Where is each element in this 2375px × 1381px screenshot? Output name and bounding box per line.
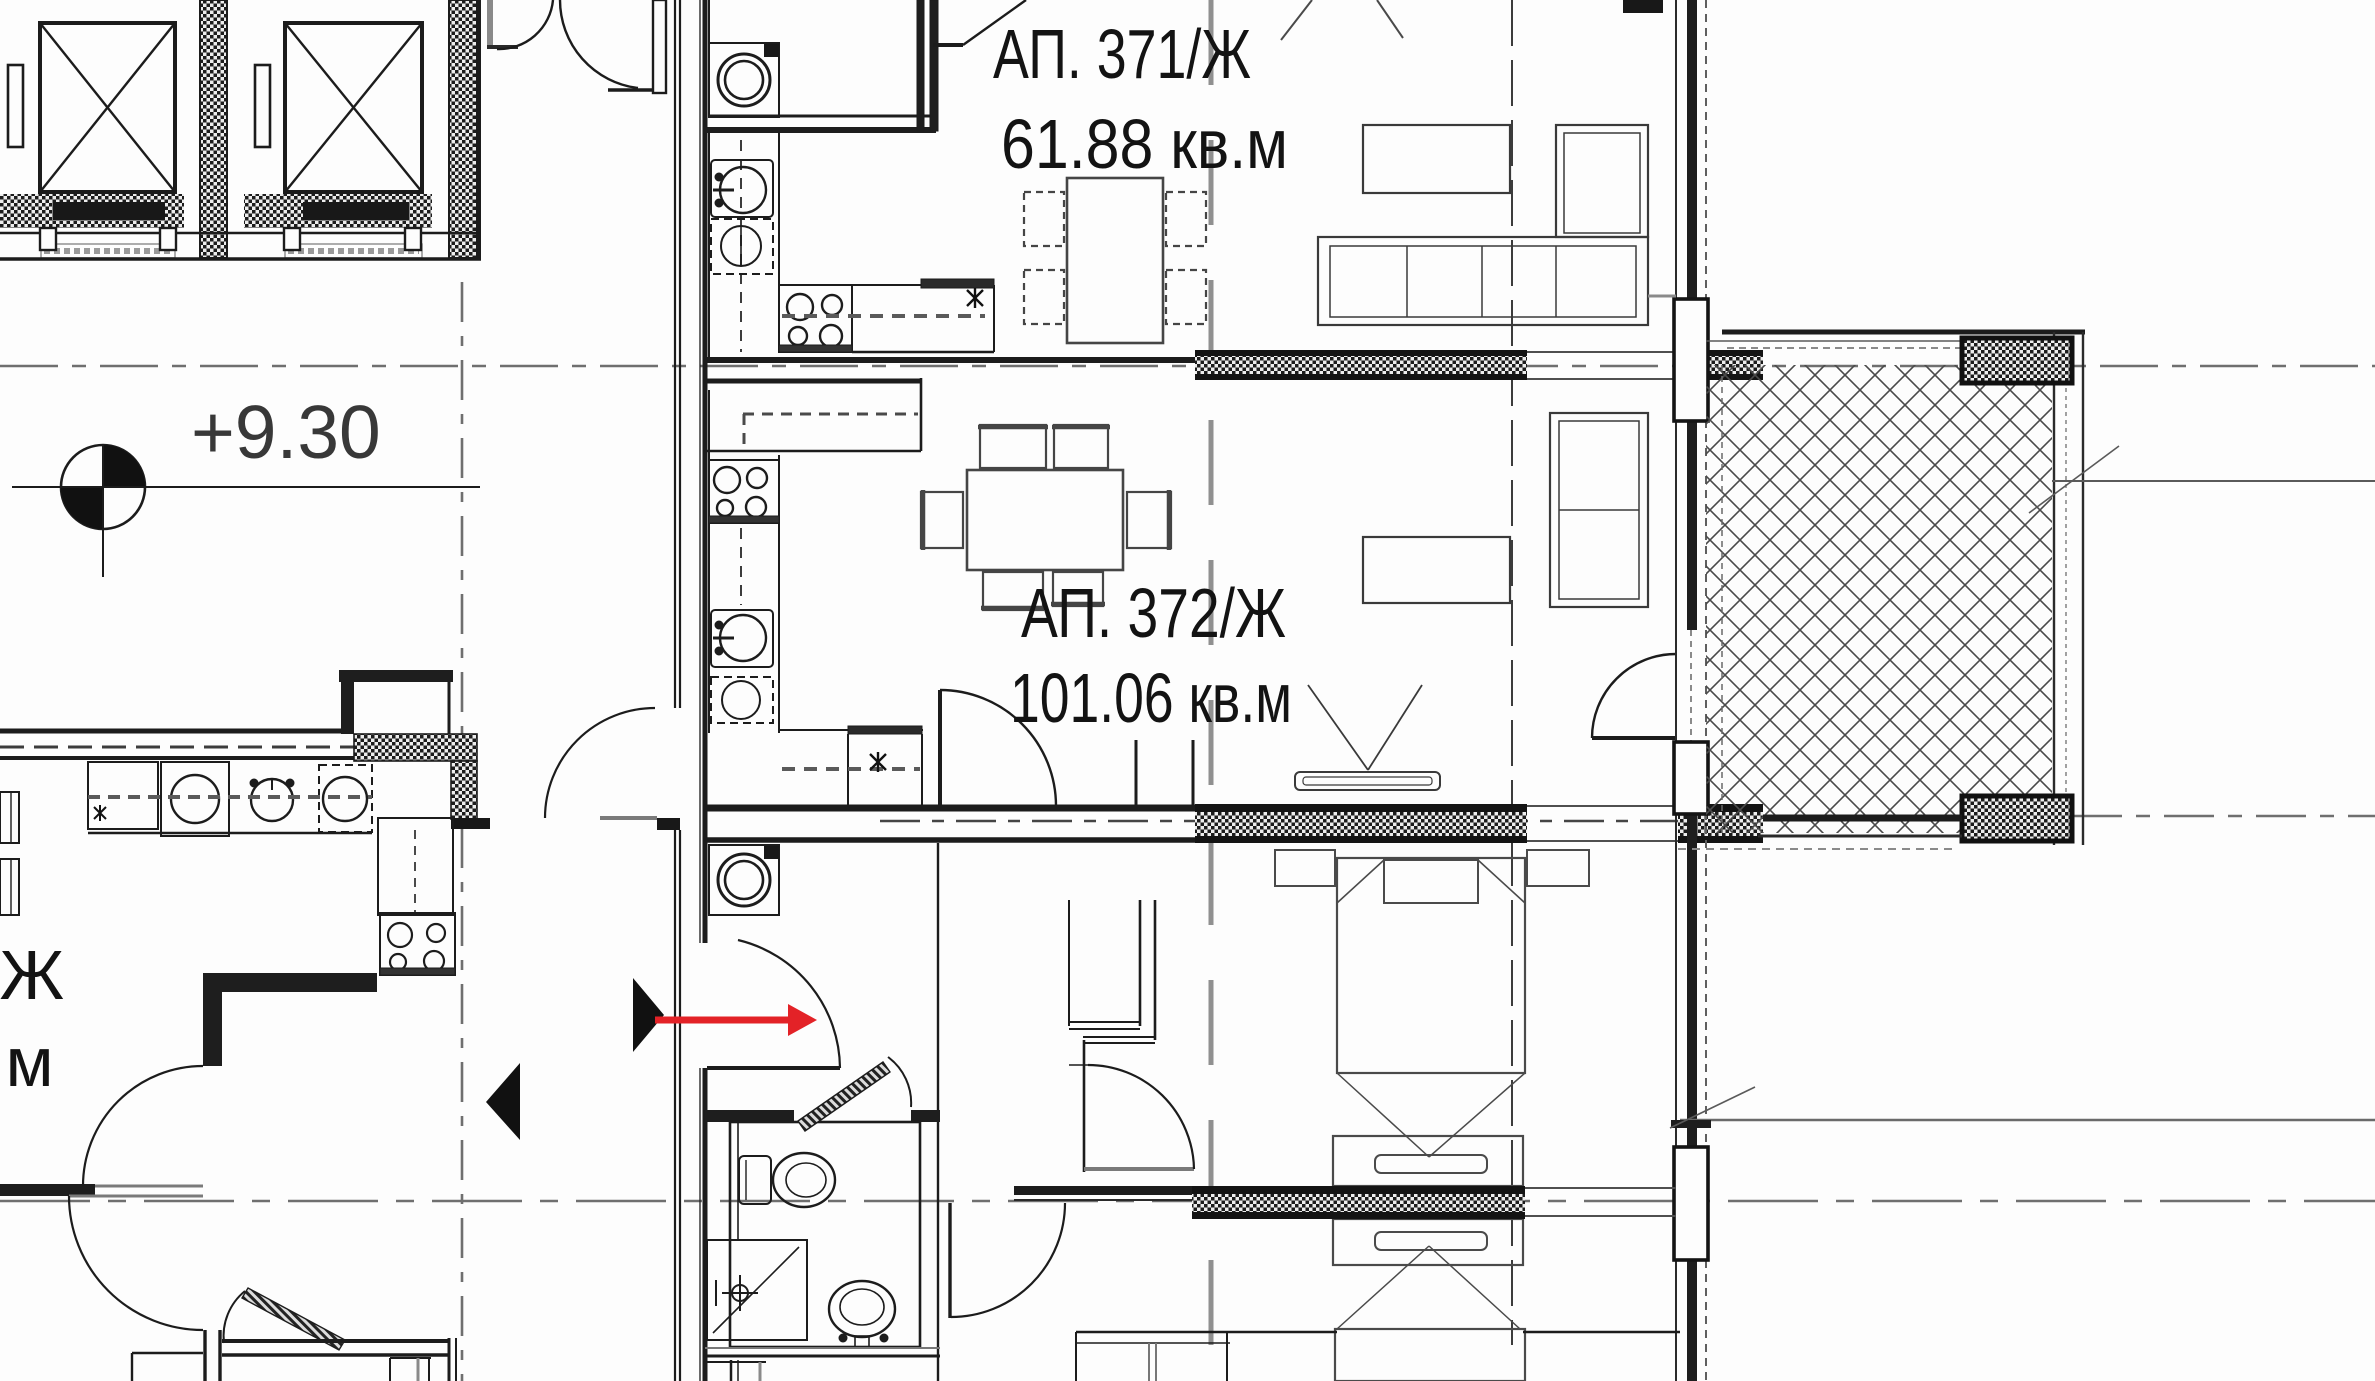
svg-text:АП. 371/Ж: АП. 371/Ж <box>993 15 1251 93</box>
svg-text:61.88 кв.м: 61.88 кв.м <box>1001 105 1288 183</box>
svg-text:/Ж: /Ж <box>0 936 64 1014</box>
svg-text:+9.30: +9.30 <box>191 390 381 474</box>
svg-text:.м: .м <box>0 1023 54 1101</box>
svg-text:АП. 372/Ж: АП. 372/Ж <box>1021 574 1286 652</box>
svg-text:101.06 кв.м: 101.06 кв.м <box>1010 659 1292 737</box>
